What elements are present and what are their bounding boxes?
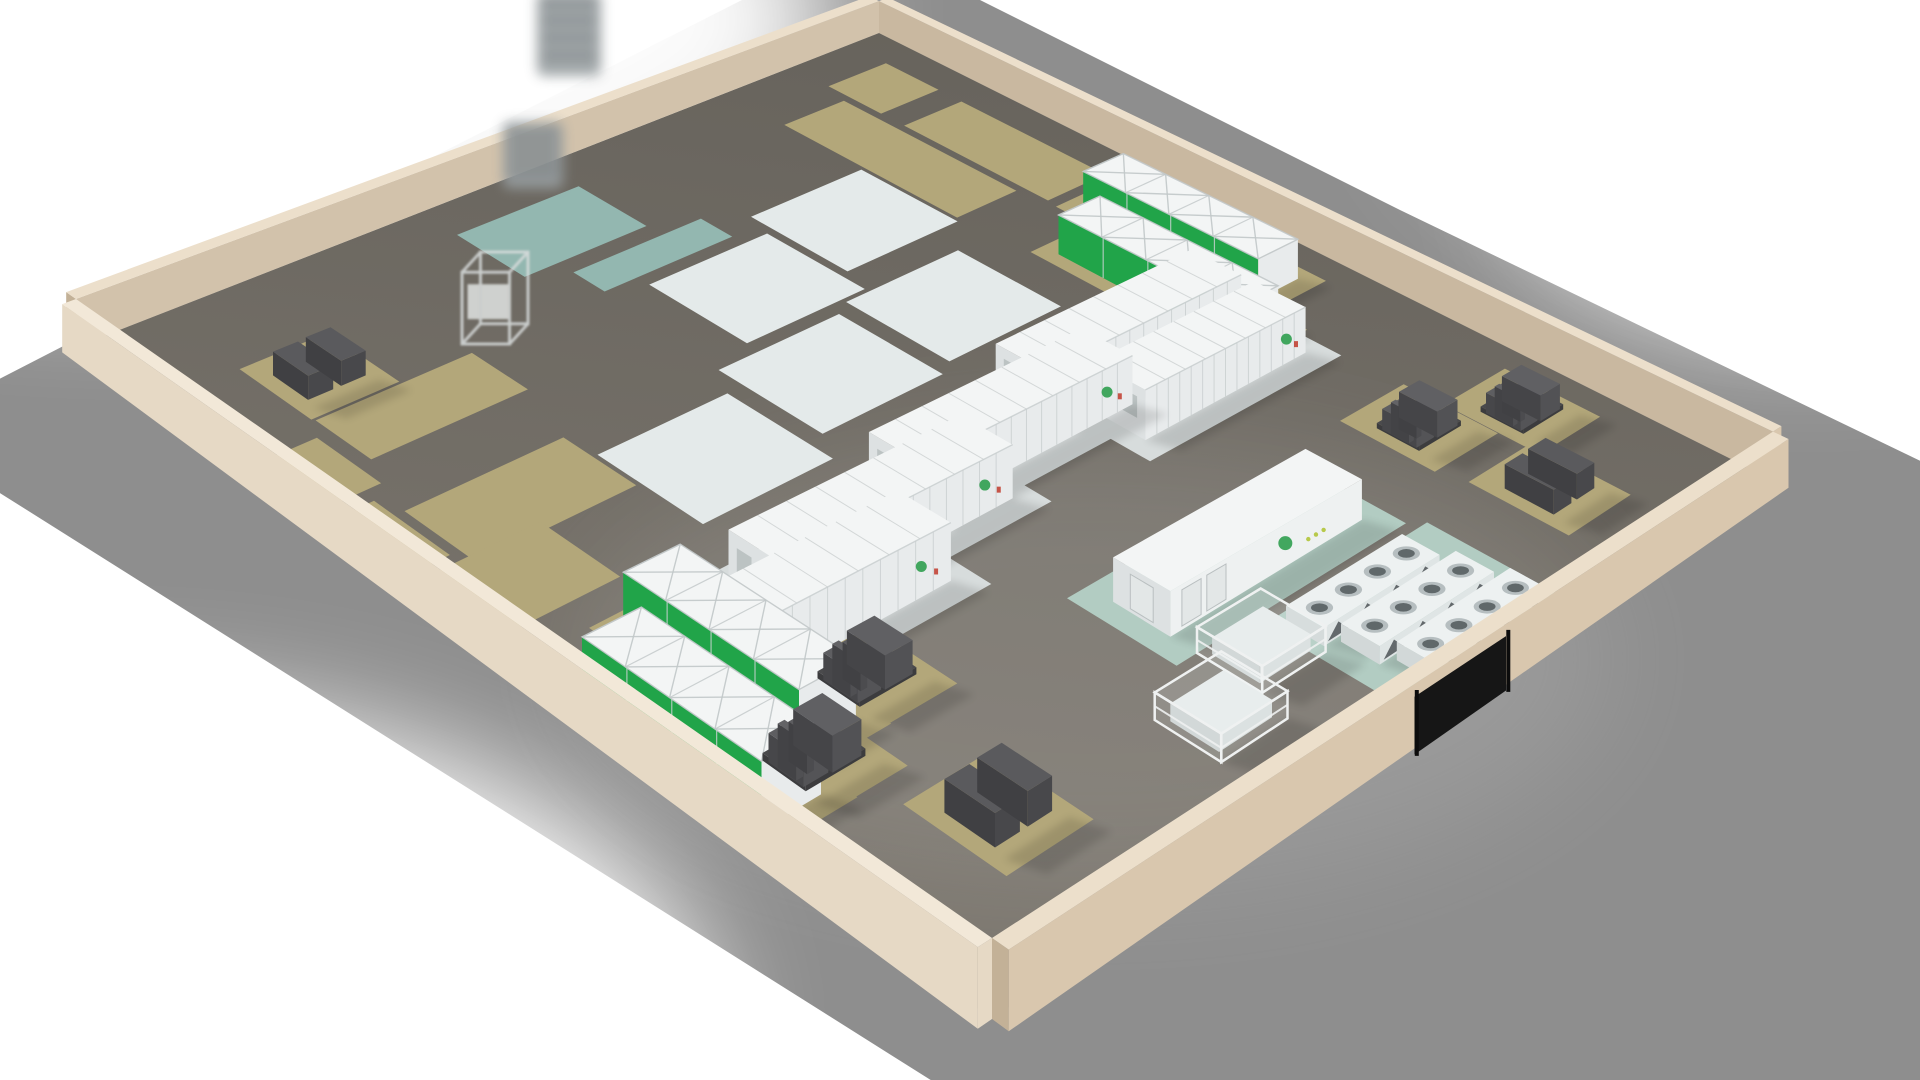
container-green-logo bbox=[1102, 387, 1113, 398]
container-red-label bbox=[997, 487, 1001, 493]
container-red-label bbox=[934, 568, 938, 574]
container-green-logo bbox=[1278, 536, 1292, 550]
container-red-label bbox=[1118, 393, 1122, 399]
floating-blurred-object-top bbox=[537, 0, 601, 76]
floating-blurred-object-wall bbox=[503, 122, 563, 188]
facility-3d-render-canvas bbox=[0, 0, 1920, 1080]
bess-site-3d-view bbox=[0, 0, 1920, 1080]
container-green-logo bbox=[916, 561, 927, 572]
container-green-logo bbox=[1281, 334, 1292, 345]
container-green-logo bbox=[979, 480, 990, 491]
container-red-label bbox=[1294, 341, 1298, 347]
